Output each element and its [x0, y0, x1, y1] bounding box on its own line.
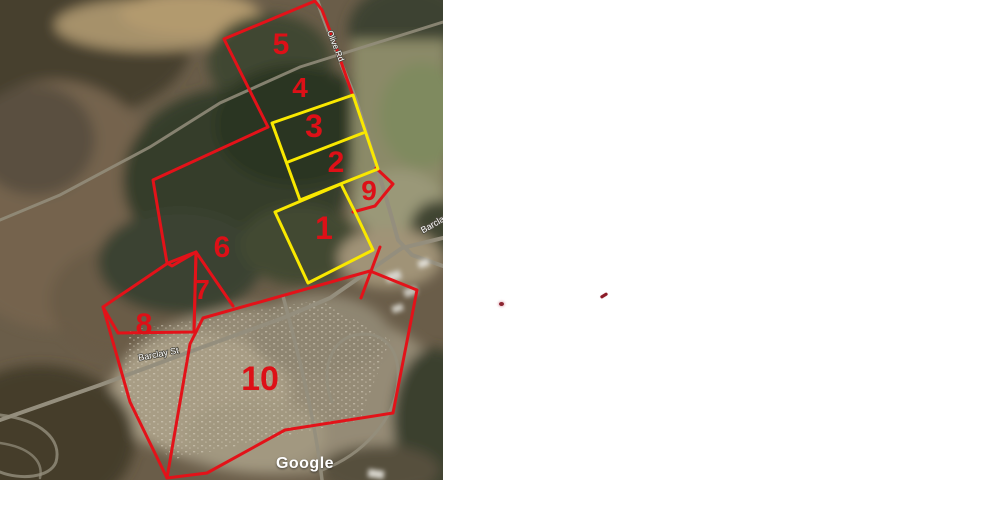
parcel-label-10: 10 [241, 360, 279, 398]
parcel-label-8: 8 [136, 308, 153, 341]
screenshot-canvas: 5 4 3 2 9 1 6 7 8 10 Olive Rd Barclay Ba… [0, 0, 999, 518]
red-dot-mark [499, 302, 504, 306]
parcel-label-4: 4 [292, 72, 308, 103]
parcel-label-7: 7 [194, 274, 210, 305]
parcel-label-1: 1 [315, 210, 333, 246]
parcel-label-2: 2 [328, 146, 345, 179]
parcel-label-5: 5 [273, 28, 290, 61]
satellite-map-svg[interactable]: 5 4 3 2 9 1 6 7 8 10 Olive Rd Barclay Ba… [0, 0, 443, 480]
satellite-map[interactable]: 5 4 3 2 9 1 6 7 8 10 Olive Rd Barclay Ba… [0, 0, 443, 480]
parcel-label-9: 9 [361, 175, 377, 206]
parcel-label-6: 6 [214, 231, 231, 264]
google-logo[interactable]: Google [276, 455, 334, 472]
red-dash-mark [600, 292, 608, 299]
parcel-label-3: 3 [305, 108, 323, 144]
